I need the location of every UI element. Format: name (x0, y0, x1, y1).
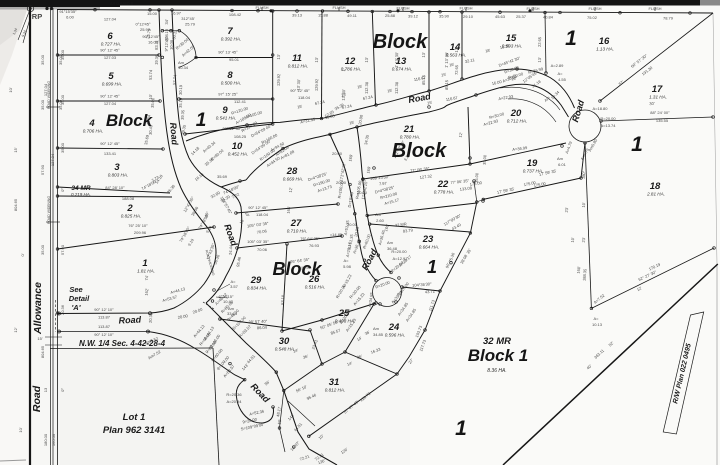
svg-text:20.36: 20.36 (148, 312, 154, 323)
svg-text:35.90: 35.90 (439, 14, 450, 19)
svg-text:127.04: 127.04 (104, 17, 117, 22)
svg-text:12': 12' (13, 327, 18, 332)
svg-text:188.08: 188.08 (122, 196, 135, 201)
svg-text:34.85: 34.85 (373, 332, 384, 337)
svg-text:16.97: 16.97 (171, 11, 182, 16)
svg-text:15': 15' (37, 336, 42, 341)
svg-text:108.13: 108.13 (164, 28, 169, 41)
svg-text:9: 9 (222, 105, 228, 116)
svg-text:A=: A= (593, 316, 599, 321)
svg-text:1.81 HA.: 1.81 HA. (137, 269, 155, 274)
svg-text:118.04: 118.04 (298, 95, 311, 100)
svg-text:85.15: 85.15 (444, 79, 449, 90)
svg-text:30: 30 (279, 336, 290, 347)
svg-text:Am: Am (557, 156, 564, 161)
svg-text:91°15'35°: 91°15'35° (59, 9, 77, 14)
svg-text:76.93: 76.93 (309, 243, 320, 248)
svg-text:40.84: 40.84 (543, 15, 554, 20)
svg-text:'A': 'A' (72, 303, 81, 312)
svg-text:7.97: 7.97 (379, 181, 388, 187)
svg-text:19.35: 19.35 (154, 54, 160, 65)
svg-text:127.04: 127.04 (104, 101, 117, 106)
svg-text:90° 12' 45°: 90° 12' 45° (100, 141, 120, 146)
svg-text:2: 2 (126, 203, 133, 214)
svg-text:63.10: 63.10 (280, 294, 286, 305)
svg-text:7: 7 (227, 26, 233, 37)
svg-text:127.04: 127.04 (50, 153, 55, 166)
svg-text:6.00: 6.00 (66, 15, 75, 20)
svg-text:13': 13' (314, 57, 319, 63)
svg-text:10': 10' (8, 87, 13, 92)
svg-text:13': 13' (280, 267, 285, 273)
svg-text:24: 24 (388, 322, 400, 333)
svg-text:0.712 HA.: 0.712 HA. (507, 119, 527, 124)
svg-text:36.48: 36.48 (387, 246, 398, 251)
svg-text:39.13: 39.13 (292, 13, 303, 18)
svg-text:29: 29 (250, 275, 262, 286)
svg-text:0.834 HA.: 0.834 HA. (247, 286, 267, 291)
svg-text:22.65: 22.65 (537, 36, 542, 47)
svg-text:0': 0' (20, 253, 25, 256)
svg-text:0.825 HA.: 0.825 HA. (121, 214, 141, 219)
svg-text:2.81 HA.: 2.81 HA. (646, 192, 665, 197)
svg-text:1.31 HA.: 1.31 HA. (649, 95, 667, 100)
svg-text:10': 10' (18, 427, 23, 432)
svg-text:1: 1 (455, 417, 467, 440)
svg-text:25.37: 25.37 (516, 14, 527, 19)
svg-text:A=: A= (557, 71, 563, 76)
svg-text:88° 24' 00°: 88° 24' 00° (650, 110, 670, 115)
svg-text:19: 19 (527, 158, 538, 169)
svg-text:1: 1 (142, 258, 147, 269)
svg-text:21: 21 (403, 124, 415, 135)
svg-text:39.35: 39.35 (180, 109, 186, 120)
svg-text:35.00: 35.00 (40, 99, 45, 110)
svg-text:See: See (69, 285, 82, 294)
svg-text:1: 1 (427, 257, 437, 277)
svg-text:90° 12' 45°: 90° 12' 45° (290, 88, 310, 93)
svg-text:0.706 HA.: 0.706 HA. (83, 129, 103, 134)
svg-text:10.13: 10.13 (592, 322, 603, 327)
svg-text:ROAD WIDENING: ROAD WIDENING (47, 196, 51, 224)
svg-text:FLUSH: FLUSH (526, 6, 539, 11)
svg-text:FLUSH: FLUSH (396, 5, 409, 10)
svg-text:Detail: Detail (69, 294, 90, 303)
svg-text:0.392 HA.: 0.392 HA. (221, 37, 241, 42)
svg-text:108.25: 108.25 (234, 134, 247, 139)
svg-text:10': 10' (570, 237, 575, 243)
svg-text:ASSUMED E: ASSUMED E (110, 1, 134, 6)
svg-text:84° 28' 10°: 84° 28' 10° (105, 185, 125, 190)
svg-text:160': 160' (576, 266, 582, 274)
svg-text:0°: 0° (60, 188, 65, 192)
svg-text:23: 23 (422, 234, 434, 245)
svg-text:90° 12' 45°: 90° 12' 45° (248, 205, 268, 210)
svg-text:R=20.36: R=20.36 (226, 392, 242, 397)
svg-text:112.41: 112.41 (234, 99, 247, 104)
svg-text:27: 27 (290, 218, 302, 229)
svg-text:1': 1' (341, 68, 346, 71)
svg-text:34': 34' (164, 19, 169, 25)
svg-text:RP: RP (32, 12, 42, 21)
svg-text:0.699 HA.: 0.699 HA. (102, 82, 122, 87)
svg-text:13': 13' (454, 47, 459, 53)
svg-text:13': 13' (537, 57, 542, 63)
svg-text:A=: A= (343, 258, 349, 263)
svg-text:95.01: 95.01 (229, 57, 240, 62)
svg-text:0.219 HA.: 0.219 HA. (71, 192, 91, 197)
svg-text:12': 12' (288, 187, 293, 193)
svg-text:0.710 HA.: 0.710 HA. (287, 229, 307, 234)
svg-text:113.87: 113.87 (98, 315, 111, 320)
svg-text:FLUSH: FLUSH (255, 5, 268, 10)
svg-text:209.96: 209.96 (134, 230, 147, 235)
svg-text:10': 10' (581, 202, 586, 208)
svg-text:FLUSH: FLUSH (588, 6, 601, 11)
svg-text:A=2.89: A=2.89 (551, 63, 565, 68)
svg-text:57.90: 57.90 (60, 244, 65, 255)
svg-text:53.74: 53.74 (148, 69, 154, 80)
svg-text:Plan 962 3141: Plan 962 3141 (103, 425, 165, 436)
svg-text:15.88: 15.88 (318, 13, 329, 18)
svg-text:180°: 180° (581, 170, 587, 179)
svg-text:0.727 HA.: 0.727 HA. (101, 42, 121, 47)
svg-text:129.92: 129.92 (276, 73, 281, 86)
svg-text:2.60: 2.60 (376, 218, 385, 223)
svg-text:0.669 HA.: 0.669 HA. (283, 177, 303, 182)
svg-text:13': 13' (421, 52, 426, 58)
svg-text:0.812 HA.: 0.812 HA. (288, 64, 308, 69)
svg-text:83.11: 83.11 (154, 39, 160, 50)
svg-text:112.38: 112.38 (364, 81, 369, 94)
svg-text:10.42: 10.42 (223, 299, 234, 304)
svg-text:1: 1 (565, 27, 577, 50)
svg-text:30' 57' 40°: 30' 57' 40° (248, 318, 267, 324)
svg-text:Road: Road (31, 385, 43, 412)
svg-text:35.00: 35.00 (482, 154, 488, 165)
svg-text:0.664 HA.: 0.664 HA. (419, 245, 439, 250)
svg-text:8: 8 (227, 70, 233, 81)
svg-text:90° 12' 45°: 90° 12' 45° (100, 94, 120, 99)
svg-text:90° 12' 10°: 90° 12' 10° (94, 307, 114, 312)
svg-text:312°45': 312°45' (181, 16, 195, 21)
svg-text:23': 23' (581, 237, 586, 243)
svg-text:49.11: 49.11 (347, 13, 357, 18)
svg-text:Block: Block (373, 31, 428, 53)
svg-text:0.780 HA.: 0.780 HA. (400, 135, 420, 140)
svg-text:31: 31 (329, 377, 340, 388)
svg-text:13: 13 (43, 387, 48, 392)
svg-text:113.87: 113.87 (98, 324, 111, 329)
svg-text:804.65: 804.65 (40, 345, 45, 358)
svg-text:0.541 HA.: 0.541 HA. (216, 116, 236, 121)
svg-text:105° 03' 35°: 105° 03' 35° (247, 239, 269, 244)
svg-text:10.34: 10.34 (178, 65, 189, 70)
svg-text:86.04: 86.04 (257, 325, 268, 331)
svg-text:72.65: 72.65 (454, 64, 459, 75)
svg-text:39.24: 39.24 (146, 114, 152, 125)
svg-text:26: 26 (308, 274, 320, 285)
svg-text:35.00: 35.00 (60, 49, 65, 60)
svg-text:15.00: 15.00 (147, 11, 158, 16)
svg-text:52.74: 52.74 (172, 74, 178, 85)
svg-text:45.63: 45.63 (495, 14, 506, 19)
svg-text:3.57: 3.57 (230, 284, 239, 289)
svg-text:10: 10 (232, 141, 243, 152)
svg-text:25.88: 25.88 (385, 13, 396, 18)
svg-text:29.10: 29.10 (463, 14, 474, 19)
svg-text:0.803 HA.: 0.803 HA. (108, 173, 128, 178)
svg-text:180.00: 180.00 (43, 433, 48, 446)
svg-text:Am: Am (387, 240, 394, 245)
svg-text:Lot 1: Lot 1 (123, 412, 146, 423)
svg-text:Allowance: Allowance (32, 282, 44, 335)
svg-text:13': 13' (364, 57, 369, 63)
svg-text:35.00: 35.00 (60, 142, 65, 153)
svg-text:118.04: 118.04 (256, 212, 269, 217)
svg-text:1.13 HA.: 1.13 HA. (596, 47, 614, 52)
svg-text:70.06: 70.06 (257, 247, 268, 252)
svg-text:30.19: 30.19 (178, 84, 184, 95)
svg-text:97° 15' 25°: 97° 15' 25° (218, 92, 238, 97)
svg-text:17: 17 (652, 84, 663, 95)
svg-text:FLUSH: FLUSH (332, 5, 345, 10)
svg-text:30': 30' (649, 101, 655, 106)
svg-text:25.79: 25.79 (185, 22, 196, 27)
svg-text:43.72: 43.72 (425, 289, 436, 295)
svg-text:90° 12' 45°: 90° 12' 45° (100, 48, 120, 53)
svg-text:76° 25' 10°: 76° 25' 10° (128, 223, 148, 228)
svg-text:13': 13' (276, 54, 281, 60)
svg-text:20.36: 20.36 (60, 304, 65, 315)
svg-text:23': 23' (564, 207, 569, 213)
svg-text:Road: Road (118, 314, 141, 325)
svg-text:15': 15' (13, 147, 18, 152)
svg-text:1: 1 (631, 133, 643, 156)
svg-text:24.44: 24.44 (228, 244, 234, 255)
svg-text:0.500 HA.: 0.500 HA. (221, 81, 241, 86)
svg-text:18: 18 (650, 181, 661, 192)
svg-text:90° 13' 45°: 90° 13' 45° (218, 50, 238, 55)
svg-text:78.79: 78.79 (663, 16, 674, 21)
svg-text:10.00: 10.00 (169, 39, 175, 50)
svg-text:4.55: 4.55 (558, 77, 567, 82)
svg-text:1: 1 (196, 110, 207, 131)
svg-text:127.03: 127.03 (104, 55, 117, 60)
svg-text:35.00: 35.00 (40, 54, 45, 65)
svg-text:3: 3 (114, 162, 120, 173)
svg-text:0.452 HA.: 0.452 HA. (228, 152, 248, 157)
svg-text:16: 16 (599, 36, 610, 47)
svg-text:5.98: 5.98 (343, 264, 352, 269)
svg-text:30.49: 30.49 (148, 124, 154, 135)
svg-text:A=18.80: A=18.80 (592, 106, 608, 111)
svg-text:85.15: 85.15 (421, 74, 426, 85)
svg-text:1' 13' 30': 1' 13' 30' (394, 52, 400, 68)
svg-text:0.812 HA.: 0.812 HA. (325, 388, 345, 393)
svg-text:5: 5 (108, 71, 114, 82)
svg-text:33.64: 33.64 (227, 311, 238, 316)
svg-text:0.778 HA.: 0.778 HA. (434, 190, 454, 195)
svg-text:15: 15 (506, 33, 517, 44)
svg-text:88° 11' 30°: 88° 11' 30° (222, 126, 242, 131)
svg-text:FLUSH: FLUSH (648, 6, 661, 11)
svg-text:0°: 0° (60, 388, 65, 392)
svg-text:20.00: 20.00 (332, 151, 343, 156)
svg-text:Road: Road (168, 122, 180, 146)
svg-text:0.516 HA.: 0.516 HA. (305, 285, 325, 290)
svg-text:A=13.74: A=13.74 (600, 123, 616, 128)
svg-text:135.55: 135.55 (656, 118, 669, 123)
svg-text:108.42: 108.42 (229, 12, 242, 17)
svg-text:133.41: 133.41 (104, 151, 117, 156)
svg-text:804.65: 804.65 (13, 198, 18, 211)
svg-text:FLUSH: FLUSH (459, 6, 472, 11)
svg-text:Am: Am (373, 326, 380, 331)
svg-text:0.596 HA.: 0.596 HA. (385, 333, 405, 338)
svg-text:35.00: 35.00 (150, 97, 156, 108)
svg-text:162': 162' (144, 288, 150, 296)
svg-text:Block 1: Block 1 (468, 346, 528, 365)
svg-text:A=20.94: A=20.94 (226, 399, 242, 404)
svg-text:34 MR: 34 MR (71, 185, 90, 192)
svg-text:4: 4 (88, 118, 95, 129)
svg-text:0°12'45°: 0°12'45° (135, 22, 150, 27)
svg-text:127.04: 127.04 (43, 83, 48, 96)
svg-text:35.00: 35.00 (60, 94, 65, 105)
svg-text:57.90: 57.90 (40, 164, 45, 175)
svg-text:74': 74' (144, 275, 149, 281)
svg-text:76° 64' 35°: 76° 64' 35° (300, 236, 320, 241)
svg-text:39.12: 39.12 (408, 14, 419, 19)
svg-text:22: 22 (437, 179, 449, 190)
svg-text:20: 20 (510, 108, 522, 119)
svg-text:6.01: 6.01 (558, 162, 567, 167)
svg-text:8.36 HA.: 8.36 HA. (487, 368, 506, 374)
svg-text:R=20.00: R=20.00 (600, 116, 616, 121)
svg-text:129.92: 129.92 (314, 78, 319, 91)
svg-text:Am: Am (375, 212, 382, 217)
svg-text:6: 6 (107, 31, 113, 42)
svg-text:112.38: 112.38 (394, 81, 399, 94)
svg-text:1': 1' (296, 58, 301, 61)
svg-text:=14.85: =14.85 (330, 232, 343, 237)
svg-text:35.69: 35.69 (217, 174, 228, 179)
svg-text:160.00: 160.00 (51, 433, 56, 446)
svg-text:166': 166' (286, 206, 292, 214)
svg-text:90° 12' 10°: 90° 12' 10° (94, 332, 114, 337)
svg-text:28: 28 (286, 166, 298, 177)
svg-text:35.19: 35.19 (178, 97, 184, 108)
svg-text:75.02: 75.02 (587, 15, 598, 20)
svg-text:12: 12 (345, 56, 356, 67)
svg-text:35.00: 35.00 (40, 244, 45, 255)
